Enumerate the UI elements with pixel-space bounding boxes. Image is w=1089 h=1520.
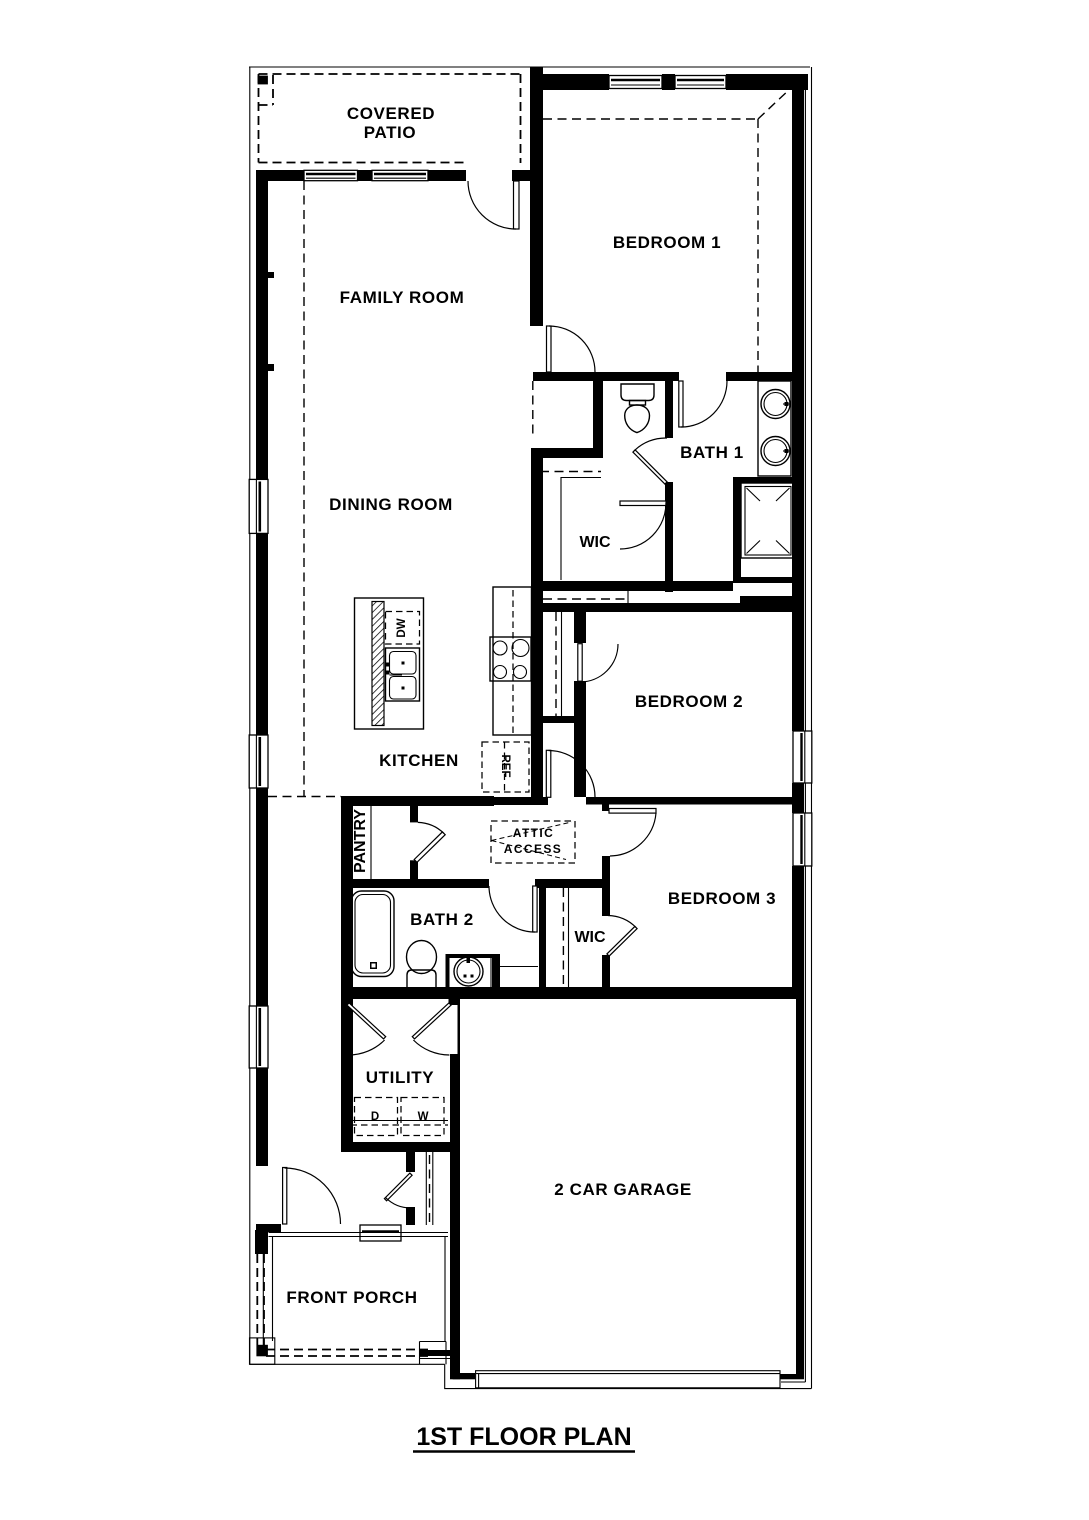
svg-text:PATIO: PATIO [364,123,416,142]
svg-text:FAMILY ROOM: FAMILY ROOM [340,288,465,307]
svg-text:COVERED: COVERED [347,104,435,123]
svg-text:BATH 2: BATH 2 [410,910,474,929]
svg-text:KITCHEN: KITCHEN [379,751,459,770]
svg-text:REF: REF [499,755,511,778]
svg-text:ATTIC: ATTIC [513,826,554,840]
svg-text:FRONT PORCH: FRONT PORCH [286,1288,417,1307]
svg-text:BEDROOM 1: BEDROOM 1 [613,233,721,252]
svg-text:2 CAR GARAGE: 2 CAR GARAGE [554,1180,692,1199]
svg-text:WIC: WIC [579,534,611,551]
svg-text:W: W [418,1111,429,1123]
svg-text:1ST FLOOR PLAN: 1ST FLOOR PLAN [416,1423,631,1451]
svg-text:BATH 1: BATH 1 [680,443,744,462]
svg-text:BEDROOM 2: BEDROOM 2 [635,692,743,711]
svg-text:BEDROOM 3: BEDROOM 3 [668,889,776,908]
svg-text:ACCESS: ACCESS [504,842,562,856]
svg-text:PANTRY: PANTRY [352,809,369,873]
svg-text:D: D [371,1111,379,1123]
svg-text:DW: DW [396,618,408,637]
svg-text:WIC: WIC [574,929,606,946]
svg-text:UTILITY: UTILITY [366,1068,434,1087]
svg-text:DINING ROOM: DINING ROOM [329,495,453,514]
